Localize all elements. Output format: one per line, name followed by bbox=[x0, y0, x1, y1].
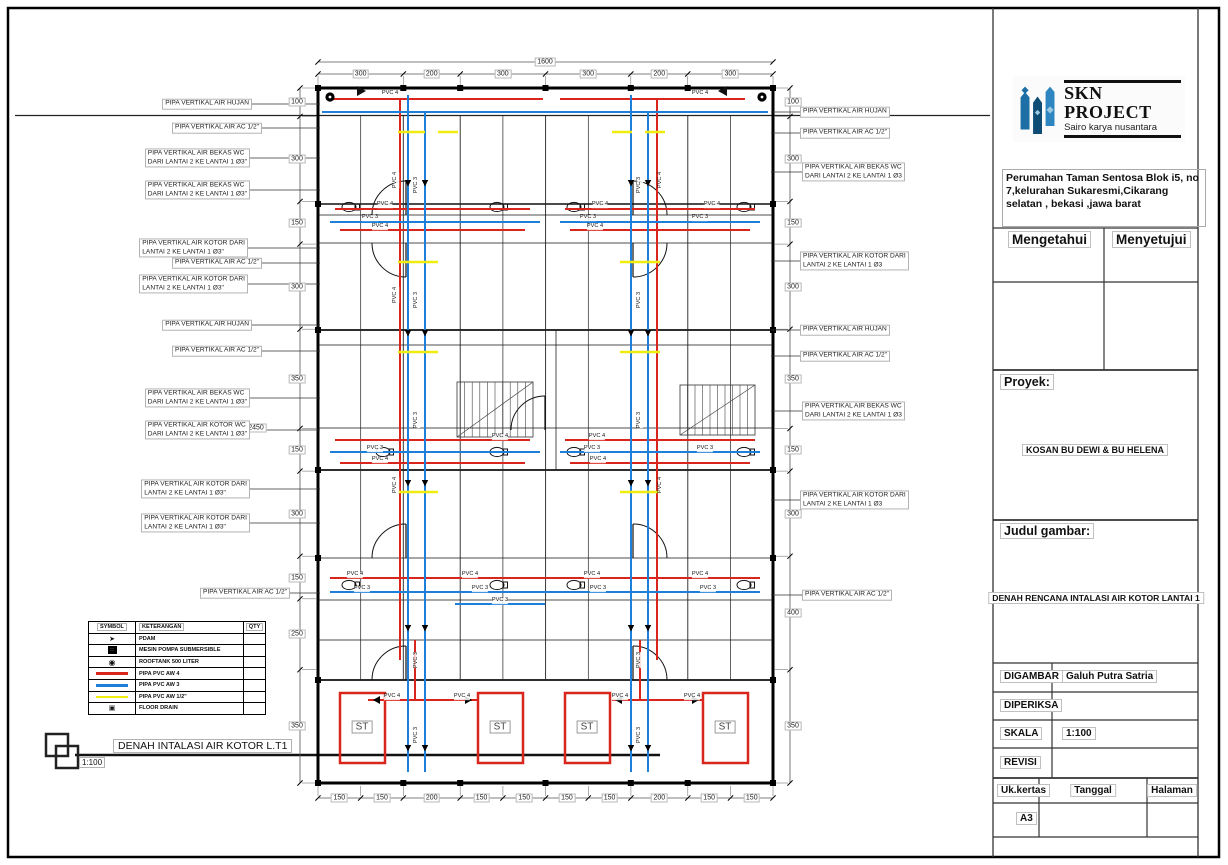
callout-line: DARI LANTAI 2 KE LANTAI 1 Ø3" bbox=[148, 430, 247, 439]
pipe-size-label: PVC 3 bbox=[472, 586, 488, 592]
pipe-size-label: PVC 3 bbox=[697, 446, 713, 452]
pipe-size-label: PVC 4 bbox=[692, 572, 708, 578]
dim-left: 150 bbox=[289, 218, 306, 227]
pipe-size-label: PVC 4 bbox=[372, 224, 388, 230]
pipe-callout-right: PIPA VERTIKAL AIR HUJAN bbox=[800, 325, 890, 336]
pdam-arrow-icon: ➤ bbox=[109, 635, 115, 643]
callout-line: PIPA VERTIKAL AIR KOTOR DARI bbox=[803, 491, 906, 500]
pipe-size-label: PVC 4 bbox=[462, 572, 478, 578]
pipe-callout-right: PIPA VERTIKAL AIR BEKAS WCDARI LANTAI 2 … bbox=[802, 162, 905, 181]
callout-line: PIPA VERTIKAL AIR KOTOR DARI bbox=[142, 239, 245, 248]
pipe-size-label: PVC 3 bbox=[492, 598, 508, 604]
dim-left: 150 bbox=[289, 573, 306, 582]
pipe-size-label: PVC 4 bbox=[393, 287, 399, 303]
callout-line: PIPA VERTIKAL AIR BEKAS WC bbox=[805, 402, 902, 411]
dim-bottom: 150 bbox=[473, 794, 490, 803]
pipe-size-label: PVC 4 bbox=[492, 434, 508, 440]
dim-right: 350 bbox=[785, 722, 802, 731]
legend-label: MESIN POMPA SUBMERSIBLE bbox=[136, 645, 244, 656]
dim-left: 300 bbox=[289, 282, 306, 291]
dim-bottom: 200 bbox=[423, 794, 440, 803]
callout-line: DARI LANTAI 2 KE LANTAI 1 Ø3 bbox=[805, 411, 902, 420]
date-label: Tanggal bbox=[1070, 784, 1116, 797]
company-tagline: Sairo karya nusantara bbox=[1064, 122, 1181, 138]
pipe-callout-left: PIPA VERTIKAL AIR AC 1/2" bbox=[172, 258, 262, 269]
project-address: Perumahan Taman Sentosa Blok i5, no 7,ke… bbox=[1002, 169, 1206, 227]
field-skala-value: 1:100 bbox=[1062, 727, 1096, 740]
dim-right: 350 bbox=[785, 374, 802, 383]
judul-value: DENAH RENCANA INTALASI AIR KOTOR LANTAI … bbox=[988, 592, 1204, 604]
dim-left: 300 bbox=[289, 154, 306, 163]
pipe-size-label: PVC 4 bbox=[704, 202, 720, 208]
dim-top: 200 bbox=[651, 70, 668, 79]
legend-row: ∷MESIN POMPA SUBMERSIBLE bbox=[89, 644, 265, 656]
legend-header-qty: QTY bbox=[246, 623, 264, 631]
legend-header-keterangan: KETERANGAN bbox=[139, 623, 184, 631]
legend-label: PIPA PVC AW 1/2" bbox=[136, 692, 244, 703]
pipe-size-label: PVC 3 bbox=[414, 412, 420, 428]
pipe-callout-left: PIPA VERTIKAL AIR KOTOR DARILANTAI 2 KE … bbox=[141, 479, 250, 498]
pipe-size-label: PVC 4 bbox=[372, 457, 388, 463]
pipe-size-label: PVC 4 bbox=[658, 477, 664, 493]
callout-line: LANTAI 2 KE LANTAI 1 Ø3" bbox=[144, 489, 247, 498]
dim-right: 300 bbox=[785, 509, 802, 518]
dim-bottom: 150 bbox=[331, 794, 348, 803]
dim-bottom: 150 bbox=[374, 794, 391, 803]
callout-line: PIPA VERTIKAL AIR HUJAN bbox=[165, 100, 249, 109]
approve-right-label: Menyetujui bbox=[1112, 231, 1191, 248]
dim-left: 250 bbox=[289, 630, 306, 639]
callout-line: PIPA VERTIKAL AIR KOTOR WC bbox=[148, 421, 247, 430]
callout-line: PIPA VERTIKAL AIR AC 1/2" bbox=[803, 129, 887, 138]
pipe-size-label: PVC 4 bbox=[382, 91, 398, 97]
dim-bottom: 150 bbox=[743, 794, 760, 803]
dim-bottom: 150 bbox=[601, 794, 618, 803]
drawing-sheet: SKN PROJECT Sairo karya nusantara Peruma… bbox=[0, 0, 1228, 865]
pipe-size-label: PVC 3 bbox=[580, 215, 596, 221]
pipe-callout-left: PIPA VERTIKAL AIR AC 1/2" bbox=[172, 346, 262, 357]
callout-line: DARI LANTAI 2 KE LANTAI 1 Ø3" bbox=[148, 158, 247, 167]
pipe-size-label: PVC 4 bbox=[454, 694, 470, 700]
legend-label: PIPA PVC AW 4 bbox=[136, 668, 244, 679]
pipe-callout-left: PIPA VERTIKAL AIR KOTOR DARILANTAI 2 KE … bbox=[139, 274, 248, 293]
pipe-size-label: PVC 4 bbox=[589, 434, 605, 440]
callout-line: PIPA VERTIKAL AIR AC 1/2" bbox=[203, 589, 287, 598]
callout-line: DARI LANTAI 2 KE LANTAI 1 Ø3" bbox=[148, 398, 247, 407]
paper-size: A3 bbox=[1016, 812, 1037, 825]
dim-left: 150 bbox=[289, 445, 306, 454]
pipe-red-icon bbox=[96, 672, 128, 675]
company-name: SKN PROJECT bbox=[1064, 80, 1181, 122]
dim-top: 200 bbox=[423, 70, 440, 79]
rooftank-icon: ◉ bbox=[109, 658, 116, 667]
page-label: Halaman bbox=[1147, 784, 1197, 797]
pipe-yellow-icon bbox=[96, 696, 128, 699]
callout-line: PIPA VERTIKAL AIR BEKAS WC bbox=[148, 181, 247, 190]
pipe-blue-icon bbox=[96, 684, 128, 687]
submersible-pump-icon: ∷ bbox=[108, 646, 117, 654]
pipe-size-label: PVC 3 bbox=[637, 727, 643, 743]
legend-row: PIPA PVC AW 1/2" bbox=[89, 691, 265, 703]
company-logo: SKN PROJECT Sairo karya nusantara bbox=[1013, 76, 1185, 142]
septic-tank-label: ST bbox=[715, 721, 736, 734]
pipe-size-label: PVC 3 bbox=[637, 412, 643, 428]
pipe-callout-right: PIPA VERTIKAL AIR AC 1/2" bbox=[802, 590, 892, 601]
field-revisi-label: REVISI bbox=[1000, 756, 1041, 769]
dim-left: 350 bbox=[289, 722, 306, 731]
judul-label: Judul gambar: bbox=[1000, 523, 1094, 539]
field-diperiksa-label: DIPERIKSA bbox=[1000, 699, 1062, 712]
callout-line: PIPA VERTIKAL AIR KOTOR DARI bbox=[144, 514, 247, 523]
approve-left-label: Mengetahui bbox=[1008, 231, 1091, 248]
callout-line: PIPA VERTIKAL AIR AC 1/2" bbox=[175, 347, 259, 356]
callout-line: PIPA VERTIKAL AIR BEKAS WC bbox=[148, 389, 247, 398]
dim-right: 150 bbox=[785, 218, 802, 227]
dim-bottom: 150 bbox=[701, 794, 718, 803]
pipe-size-label: PVC 4 bbox=[393, 477, 399, 493]
pipe-size-label: PVC 4 bbox=[612, 694, 628, 700]
legend-row: PIPA PVC AW 4 bbox=[89, 667, 265, 679]
legend-label: PIPA PVC AW 3 bbox=[136, 680, 244, 691]
dim-top: 300 bbox=[495, 70, 512, 79]
pipe-callout-right: PIPA VERTIKAL AIR KOTOR DARILANTAI 2 KE … bbox=[800, 490, 909, 509]
callout-line: PIPA VERTIKAL AIR KOTOR DARI bbox=[142, 275, 245, 284]
pipe-callout-left: PIPA VERTIKAL AIR HUJAN bbox=[162, 320, 252, 331]
pipe-size-label: PVC 4 bbox=[347, 572, 363, 578]
dim-right: 400 bbox=[785, 608, 802, 617]
pipe-callout-right: PIPA VERTIKAL AIR BEKAS WCDARI LANTAI 2 … bbox=[802, 401, 905, 420]
pipe-size-label: PVC 3 bbox=[700, 586, 716, 592]
pipe-callout-left: PIPA VERTIKAL AIR BEKAS WCDARI LANTAI 2 … bbox=[145, 388, 250, 407]
pipe-size-label: PVC 3 bbox=[637, 652, 643, 668]
dim-top: 300 bbox=[580, 70, 597, 79]
pipe-size-label: PVC 4 bbox=[584, 572, 600, 578]
pipe-size-label: PVC 4 bbox=[393, 172, 399, 188]
pipe-callout-left: PIPA VERTIKAL AIR KOTOR DARILANTAI 2 KE … bbox=[141, 513, 250, 532]
pipe-size-label: PVC 3 bbox=[692, 215, 708, 221]
pipe-callout-right: PIPA VERTIKAL AIR KOTOR DARILANTAI 2 KE … bbox=[800, 251, 909, 270]
legend-row: ◉ROOFTANK 500 LITER bbox=[89, 656, 265, 668]
pipe-callout-left: PIPA VERTIKAL AIR HUJAN bbox=[162, 99, 252, 110]
legend-label: FLOOR DRAIN bbox=[136, 703, 244, 714]
pipe-size-label: PVC 3 bbox=[362, 215, 378, 221]
callout-line: LANTAI 2 KE LANTAI 1 Ø3 bbox=[803, 261, 906, 270]
floor-drain-icon: ▣ bbox=[109, 704, 116, 712]
dim-top-total: 1600 bbox=[535, 58, 556, 67]
pipe-size-label: PVC 3 bbox=[590, 586, 606, 592]
pipe-callout-right: PIPA VERTIKAL AIR AC 1/2" bbox=[800, 351, 890, 362]
pipe-callout-left: PIPA VERTIKAL AIR BEKAS WCDARI LANTAI 2 … bbox=[145, 180, 250, 199]
callout-line: PIPA VERTIKAL AIR HUJAN bbox=[165, 321, 249, 330]
pipe-size-label: PVC 3 bbox=[414, 652, 420, 668]
pipe-callout-left: PIPA VERTIKAL AIR KOTOR DARILANTAI 2 KE … bbox=[139, 238, 248, 257]
pipe-size-label: PVC 3 bbox=[414, 727, 420, 743]
pipe-callout-left: PIPA VERTIKAL AIR BEKAS WCDARI LANTAI 2 … bbox=[145, 148, 250, 167]
dim-top: 300 bbox=[722, 70, 739, 79]
callout-line: PIPA VERTIKAL AIR BEKAS WC bbox=[805, 163, 902, 172]
pipe-size-label: PVC 4 bbox=[658, 172, 664, 188]
proyek-value: KOSAN BU DEWI & BU HELENA bbox=[1022, 444, 1168, 456]
septic-tank-label: ST bbox=[490, 721, 511, 734]
callout-line: PIPA VERTIKAL AIR AC 1/2" bbox=[803, 352, 887, 361]
pipe-size-label: PVC 4 bbox=[587, 224, 603, 230]
callout-line: DARI LANTAI 2 KE LANTAI 1 Ø3 bbox=[805, 172, 902, 181]
pipe-callout-left: PIPA VERTIKAL AIR KOTOR WCDARI LANTAI 2 … bbox=[145, 420, 250, 439]
callout-line: PIPA VERTIKAL AIR AC 1/2" bbox=[805, 591, 889, 600]
logo-icon bbox=[1017, 80, 1058, 138]
symbol-legend: SYMBOL KETERANGAN QTY ➤PDAM∷MESIN POMPA … bbox=[88, 621, 266, 715]
callout-line: PIPA VERTIKAL AIR AC 1/2" bbox=[175, 124, 259, 133]
callout-line: LANTAI 2 KE LANTAI 1 Ø3" bbox=[142, 284, 245, 293]
legend-header-symbol: SYMBOL bbox=[97, 623, 127, 631]
callout-line: PIPA VERTIKAL AIR BEKAS WC bbox=[148, 149, 247, 158]
title-squares-icon bbox=[42, 730, 82, 778]
field-skala-label: SKALA bbox=[1000, 727, 1042, 740]
callout-line: LANTAI 2 KE LANTAI 1 Ø3" bbox=[142, 248, 245, 257]
paper-label: Uk.kertas bbox=[997, 784, 1050, 797]
callout-line: PIPA VERTIKAL AIR KOTOR DARI bbox=[144, 480, 247, 489]
dim-left: 350 bbox=[289, 374, 306, 383]
dim-top: 300 bbox=[352, 70, 369, 79]
dim-left: 100 bbox=[289, 98, 306, 107]
pipe-size-label: PVC 4 bbox=[377, 202, 393, 208]
pipe-callout-left: PIPA VERTIKAL AIR AC 1/2" bbox=[172, 123, 262, 134]
pipe-callout-right: PIPA VERTIKAL AIR AC 1/2" bbox=[800, 128, 890, 139]
legend-row: PIPA PVC AW 3 bbox=[89, 679, 265, 691]
callout-line: LANTAI 2 KE LANTAI 1 Ø3" bbox=[144, 523, 247, 532]
pipe-size-label: PVC 3 bbox=[414, 292, 420, 308]
callout-line: PIPA VERTIKAL AIR HUJAN bbox=[803, 108, 887, 117]
pipe-size-label: PVC 4 bbox=[592, 202, 608, 208]
callout-line: DARI LANTAI 2 KE LANTAI 1 Ø3" bbox=[148, 190, 247, 199]
callout-line: PIPA VERTIKAL AIR AC 1/2" bbox=[175, 259, 259, 268]
drawing-title: DENAH INTALASI AIR KOTOR L.T1 bbox=[113, 739, 292, 753]
pipe-size-label: PVC 3 bbox=[637, 177, 643, 193]
drawing-scale: 1:100 bbox=[79, 757, 105, 768]
pipe-size-label: PVC 3 bbox=[367, 446, 383, 452]
septic-tank-label: ST bbox=[352, 721, 373, 734]
field-digambar-label: DIGAMBAR bbox=[1000, 670, 1063, 683]
dim-right: 300 bbox=[785, 154, 802, 163]
callout-line: LANTAI 2 KE LANTAI 1 Ø3 bbox=[803, 500, 906, 509]
dim-left: 300 bbox=[289, 509, 306, 518]
legend-row: ▣FLOOR DRAIN bbox=[89, 702, 265, 714]
pipe-size-label: PVC 4 bbox=[590, 457, 606, 463]
pipe-callout-left: PIPA VERTIKAL AIR AC 1/2" bbox=[200, 588, 290, 599]
septic-tank-label: ST bbox=[577, 721, 598, 734]
dim-bottom: 200 bbox=[651, 794, 668, 803]
pipe-size-label: PVC 4 bbox=[692, 91, 708, 97]
dim-right: 150 bbox=[785, 445, 802, 454]
legend-label: PDAM bbox=[136, 634, 244, 645]
callout-line: PIPA VERTIKAL AIR HUJAN bbox=[803, 326, 887, 335]
legend-row: ➤PDAM bbox=[89, 633, 265, 645]
pipe-size-label: PVC 3 bbox=[354, 586, 370, 592]
pipe-callout-right: PIPA VERTIKAL AIR HUJAN bbox=[800, 107, 890, 118]
dim-right: 300 bbox=[785, 282, 802, 291]
dim-right: 100 bbox=[785, 98, 802, 107]
proyek-label: Proyek: bbox=[1000, 374, 1054, 390]
callout-line: PIPA VERTIKAL AIR KOTOR DARI bbox=[803, 252, 906, 261]
legend-label: ROOFTANK 500 LITER bbox=[136, 657, 244, 668]
pipe-size-label: PVC 4 bbox=[684, 694, 700, 700]
dim-bottom: 150 bbox=[559, 794, 576, 803]
pipe-size-label: PVC 3 bbox=[414, 177, 420, 193]
pipe-size-label: PVC 3 bbox=[637, 292, 643, 308]
pipe-size-label: PVC 3 bbox=[584, 446, 600, 452]
dim-bottom: 150 bbox=[516, 794, 533, 803]
pipe-size-label: PVC 4 bbox=[384, 694, 400, 700]
field-digambar-value: Galuh Putra Satria bbox=[1062, 670, 1157, 683]
